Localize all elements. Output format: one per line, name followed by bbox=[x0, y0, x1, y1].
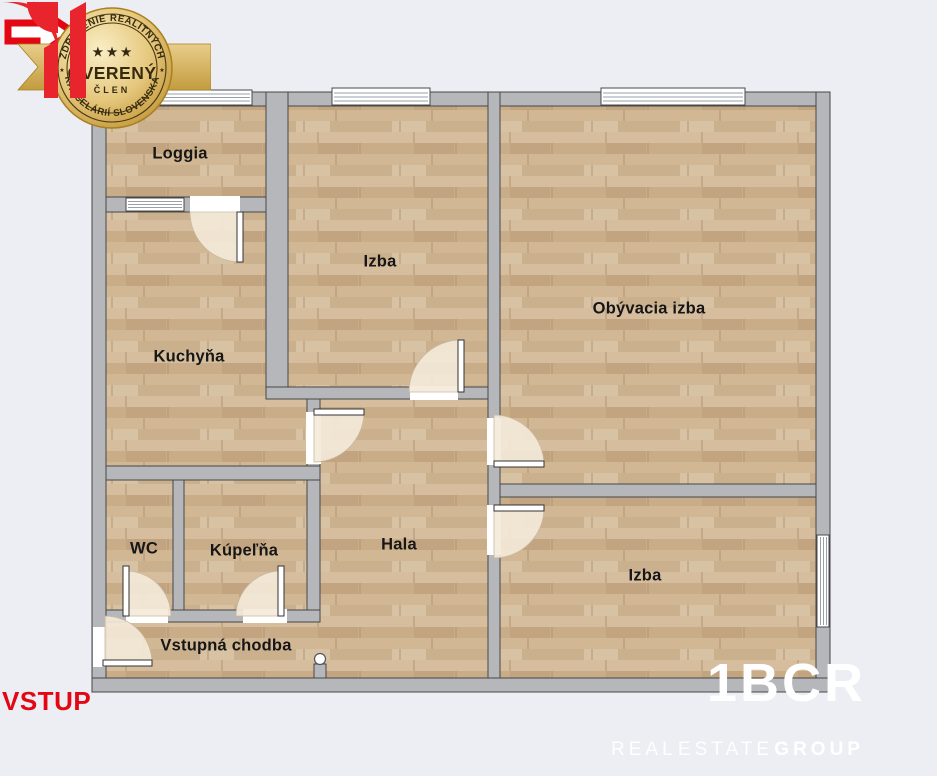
room-label-izba-top: Izba bbox=[364, 253, 397, 272]
badge-side-star-right: ★ bbox=[159, 67, 164, 74]
peephole-icon bbox=[315, 654, 326, 665]
brand-tagline-word: REAL bbox=[611, 739, 677, 761]
brand-tagline-word: GROUP bbox=[774, 739, 864, 761]
brand-tagline-word: ESTATE bbox=[678, 739, 773, 761]
badge-stars: ★ ★ ★ bbox=[93, 45, 132, 59]
room-label-kuchyna: Kuchyňa bbox=[153, 348, 224, 367]
brand-tagline: REAL ESTATE GROUP bbox=[611, 739, 864, 761]
room-label-obyvacia-izba: Obývacia izba bbox=[593, 300, 706, 319]
room-label-loggia: Loggia bbox=[152, 145, 207, 164]
floor-plan-image: Loggia Izba Obývacia izba Kuchyňa WC Kúp… bbox=[0, 0, 937, 776]
room-label-kupelna: Kúpeľňa bbox=[210, 542, 278, 561]
brand-logo-icon bbox=[0, 0, 90, 98]
room-label-vstupna-chodba: Vstupná chodba bbox=[160, 637, 291, 656]
room-label-wc: WC bbox=[130, 540, 158, 559]
brand-name: 1BCR bbox=[707, 652, 866, 714]
badge-member: ČLEN bbox=[94, 84, 131, 95]
room-label-hala: Hala bbox=[381, 536, 417, 555]
entrance-label: VSTUP bbox=[2, 686, 86, 717]
room-label-izba-bottom: Izba bbox=[629, 567, 662, 586]
